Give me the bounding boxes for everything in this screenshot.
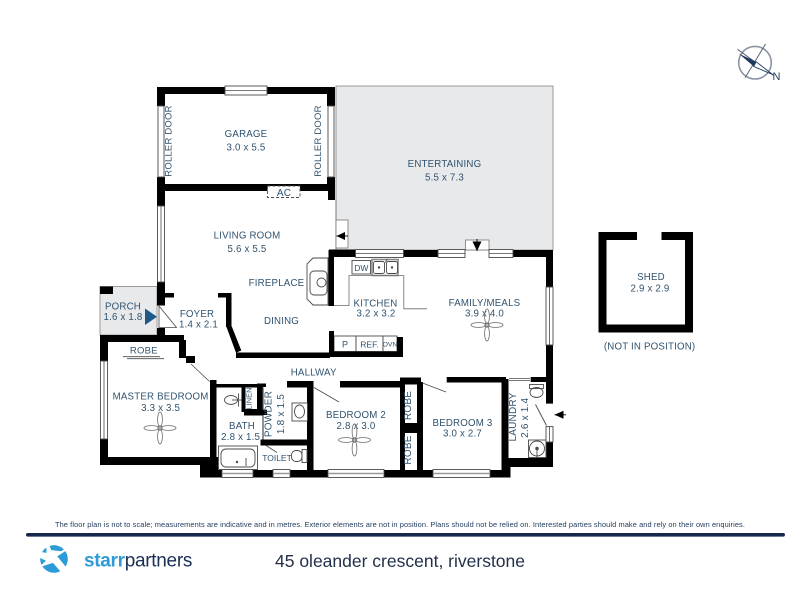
svg-text:GARAGE: GARAGE — [225, 129, 268, 140]
svg-text:FIREPLACE: FIREPLACE — [249, 278, 305, 289]
svg-text:LAUNDRY: LAUNDRY — [508, 392, 519, 441]
svg-text:P: P — [342, 340, 348, 350]
svg-text:3.0 x 5.5: 3.0 x 5.5 — [227, 143, 266, 154]
svg-text:TOILET: TOILET — [262, 453, 292, 463]
svg-text:1.8 x 1.5: 1.8 x 1.5 — [276, 394, 287, 434]
svg-text:3.0 x 2.7: 3.0 x 2.7 — [443, 428, 482, 439]
svg-text:MASTER BEDROOM: MASTER BEDROOM — [113, 392, 209, 403]
svg-text:(NOT IN POSITION): (NOT IN POSITION) — [604, 342, 696, 353]
svg-text:3.2 x 3.2: 3.2 x 3.2 — [357, 309, 396, 320]
svg-text:45 oleander crescent, riversto: 45 oleander crescent, riverstone — [275, 551, 525, 571]
svg-text:POWDER: POWDER — [264, 391, 275, 437]
svg-text:5.5 x 7.3: 5.5 x 7.3 — [425, 173, 464, 184]
svg-text:LINEN: LINEN — [245, 387, 254, 409]
svg-text:OVN: OVN — [383, 342, 398, 349]
svg-text:5.6 x 5.5: 5.6 x 5.5 — [228, 244, 267, 255]
svg-text:ROBE: ROBE — [403, 435, 414, 464]
svg-text:FOYER: FOYER — [180, 309, 214, 320]
svg-text:ROBE: ROBE — [403, 391, 414, 420]
svg-text:ENTERTAINING: ENTERTAINING — [408, 159, 482, 170]
svg-text:SHED: SHED — [637, 272, 665, 283]
svg-text:REF.: REF. — [360, 340, 378, 350]
svg-text:BEDROOM 2: BEDROOM 2 — [326, 410, 386, 421]
svg-text:ROBE: ROBE — [130, 346, 158, 357]
svg-text:2.8 x 1.5: 2.8 x 1.5 — [221, 432, 260, 443]
svg-text:PORCH: PORCH — [105, 302, 141, 313]
svg-text:HALLWAY: HALLWAY — [291, 368, 337, 379]
svg-text:DINING: DINING — [264, 316, 299, 327]
svg-text:The floor plan is not to scale: The floor plan is not to scale; measurem… — [55, 520, 745, 529]
svg-text:ROLLER DOOR: ROLLER DOOR — [313, 105, 324, 176]
svg-text:LIVING ROOM: LIVING ROOM — [214, 231, 281, 242]
svg-text:2.9 x 2.9: 2.9 x 2.9 — [631, 284, 670, 295]
svg-text:1.6 x 1.8: 1.6 x 1.8 — [104, 312, 143, 323]
svg-text:BATH: BATH — [229, 421, 255, 432]
svg-text:FAMILY/MEALS: FAMILY/MEALS — [449, 298, 521, 309]
svg-text:ROLLER DOOR: ROLLER DOOR — [164, 105, 175, 176]
svg-text:starrpartners: starrpartners — [84, 551, 192, 572]
svg-text:AC: AC — [277, 188, 291, 199]
svg-text:N: N — [773, 71, 781, 83]
svg-text:DW: DW — [354, 263, 368, 273]
svg-text:1.4 x 2.1: 1.4 x 2.1 — [179, 320, 218, 331]
svg-text:2.6 x 1.4: 2.6 x 1.4 — [520, 397, 531, 437]
